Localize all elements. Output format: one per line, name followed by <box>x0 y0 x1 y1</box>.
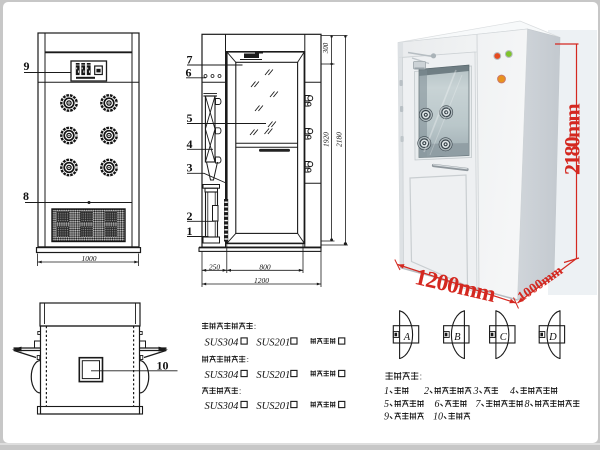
svg-text:2180mm: 2180mm <box>560 104 585 175</box>
svg-text:1: 1 <box>187 224 193 238</box>
svg-text:SUS201: SUS201 <box>256 370 290 381</box>
svg-text:9: 9 <box>384 412 389 423</box>
svg-text:8: 8 <box>525 399 530 410</box>
svg-text:2180: 2180 <box>335 132 344 147</box>
svg-text:3: 3 <box>187 161 193 175</box>
svg-text:4: 4 <box>187 137 193 151</box>
svg-text:3: 3 <box>473 386 479 397</box>
svg-text:B: B <box>454 332 461 343</box>
svg-text:9: 9 <box>24 59 30 73</box>
svg-text:250: 250 <box>209 262 221 271</box>
svg-text:8: 8 <box>23 189 29 203</box>
svg-text:10: 10 <box>433 412 443 423</box>
svg-text:1920: 1920 <box>322 132 331 147</box>
svg-text:C: C <box>500 332 508 343</box>
svg-text:6: 6 <box>435 399 440 410</box>
svg-text:SUS201: SUS201 <box>256 401 290 412</box>
svg-text:1000: 1000 <box>82 254 97 263</box>
svg-text:SUS201: SUS201 <box>256 337 290 348</box>
svg-text:SUS304: SUS304 <box>205 401 240 412</box>
svg-text:SUS304: SUS304 <box>205 370 240 381</box>
svg-text:800: 800 <box>259 262 271 271</box>
svg-text:D: D <box>548 332 557 343</box>
svg-text:5: 5 <box>187 111 193 125</box>
svg-text:1200: 1200 <box>254 276 269 285</box>
svg-text:6: 6 <box>186 65 192 79</box>
svg-text:300: 300 <box>322 42 330 54</box>
svg-text:2: 2 <box>424 386 429 397</box>
svg-text:5: 5 <box>384 399 389 410</box>
svg-text:A: A <box>403 332 411 343</box>
svg-text:SUS304: SUS304 <box>205 337 240 348</box>
svg-text:4: 4 <box>510 386 515 397</box>
svg-text:7: 7 <box>476 399 482 410</box>
svg-text:1: 1 <box>384 386 389 397</box>
